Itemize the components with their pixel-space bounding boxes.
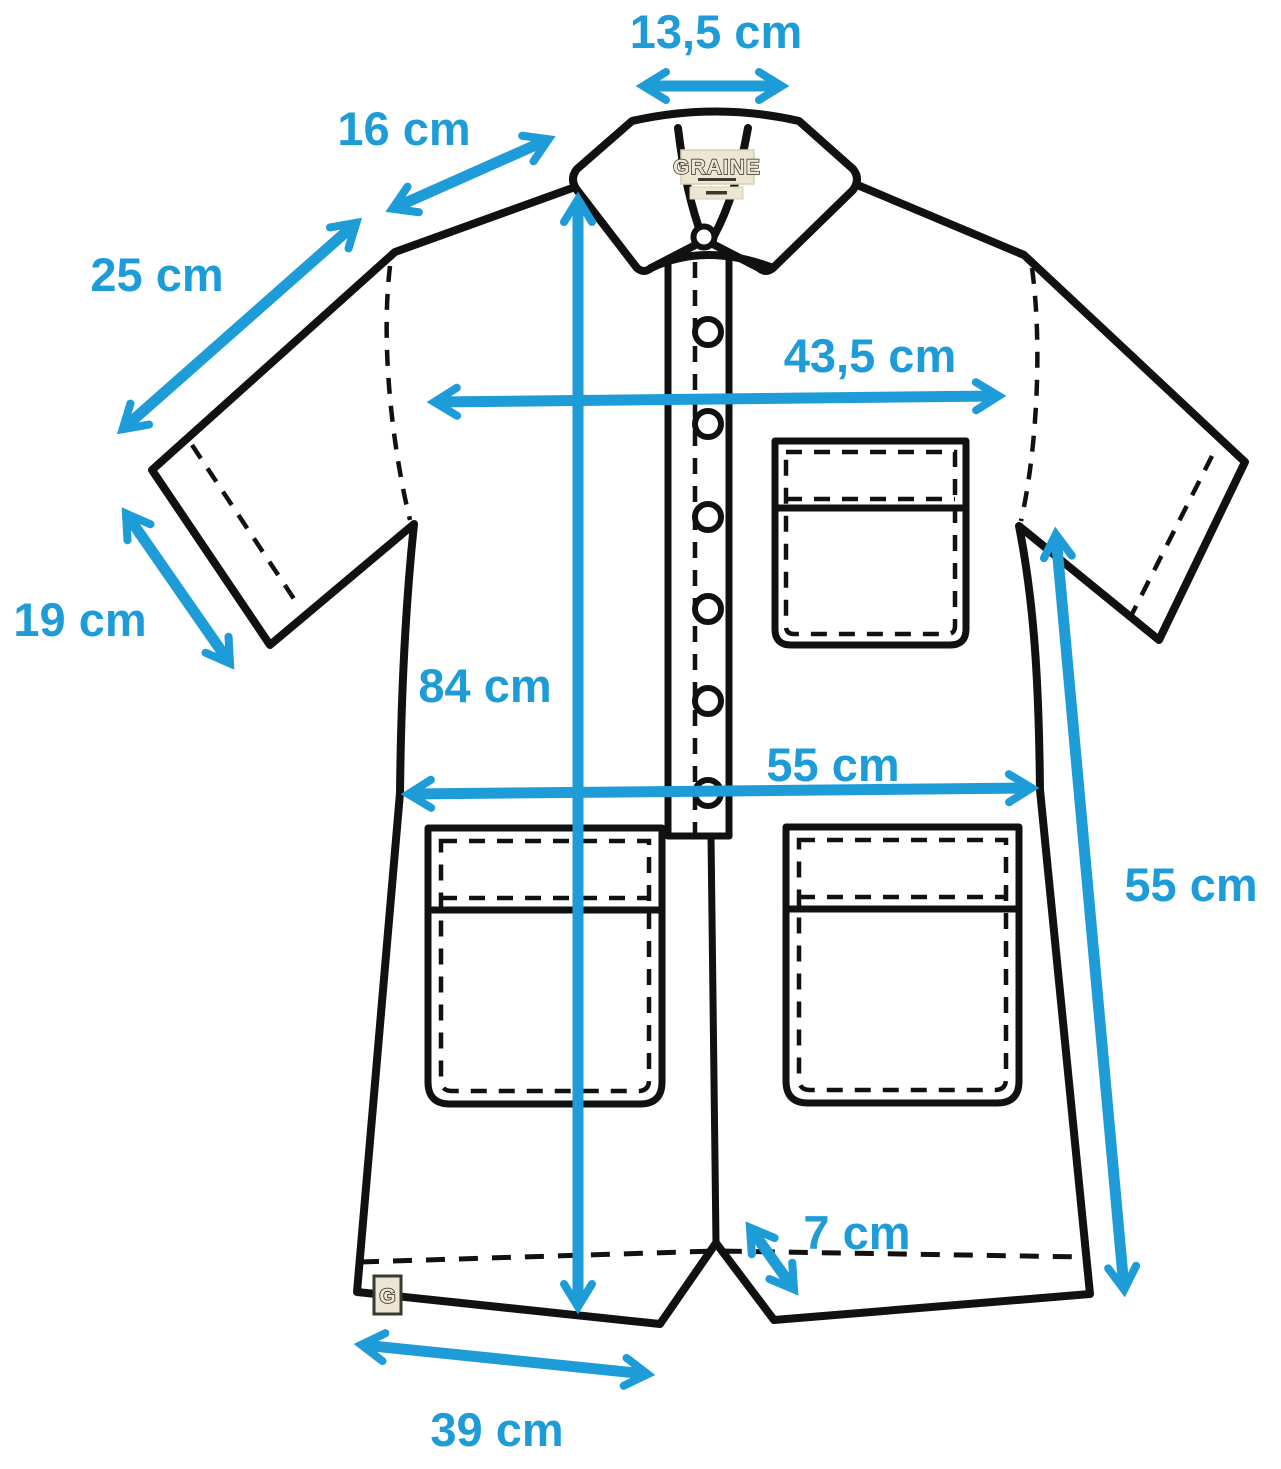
placket-button-5: [695, 688, 721, 714]
measurement-collar-point: 16 cm: [337, 102, 547, 208]
chest-pocket: [775, 441, 966, 645]
garment: GRAINE G: [152, 112, 1245, 1325]
playsuit-flat-sketch: GRAINE G 13,5 cm 16 cm 25 cm 19 cm: [0, 0, 1281, 1469]
measurement-collar-width: 13,5 cm: [630, 5, 802, 86]
collar-point-label: 16 cm: [337, 102, 470, 155]
sleeve-opening-label: 19 cm: [13, 593, 146, 646]
measurement-side-length: 55 cm: [1056, 536, 1258, 1288]
placket-button-3: [695, 504, 721, 530]
hip-width-label: 55 cm: [766, 738, 899, 791]
left-hip-pocket: [428, 828, 662, 1104]
placket-button-4: [695, 596, 721, 622]
brand-label-text: GRAINE: [673, 156, 761, 179]
hem-tag-text: G: [379, 1285, 395, 1308]
chest-width-label: 43,5 cm: [784, 329, 956, 382]
chest-pocket-outline: [775, 441, 966, 645]
size-label-microtext: [706, 191, 727, 195]
placket-button-1: [695, 319, 721, 345]
garment-measurement-diagram: GRAINE G 13,5 cm 16 cm 25 cm 19 cm: [0, 0, 1281, 1469]
placket-button-2: [695, 411, 721, 437]
right-hip-pocket-outline: [786, 827, 1019, 1103]
leg-hem-width-label: 39 cm: [430, 1403, 563, 1456]
side-length-label: 55 cm: [1124, 858, 1257, 911]
hem-tag: G: [374, 1276, 401, 1314]
center-front-seam: [711, 836, 716, 1243]
hip-width-arrow: [410, 788, 1030, 794]
collar-button: [694, 227, 715, 248]
left-hip-pocket-outline: [428, 828, 662, 1104]
chest-width-arrow: [436, 396, 997, 402]
shoulder-seam-label: 25 cm: [90, 248, 223, 301]
brand-label-microtext: [698, 178, 736, 181]
leg-hem-width-arrow: [363, 1345, 646, 1374]
leg-slit-label: 7 cm: [803, 1206, 910, 1259]
front-length-label: 84 cm: [418, 659, 551, 712]
collar-width-label: 13,5 cm: [630, 5, 802, 58]
measurement-leg-hem-width: 39 cm: [363, 1345, 646, 1456]
right-hip-pocket: [786, 827, 1019, 1103]
